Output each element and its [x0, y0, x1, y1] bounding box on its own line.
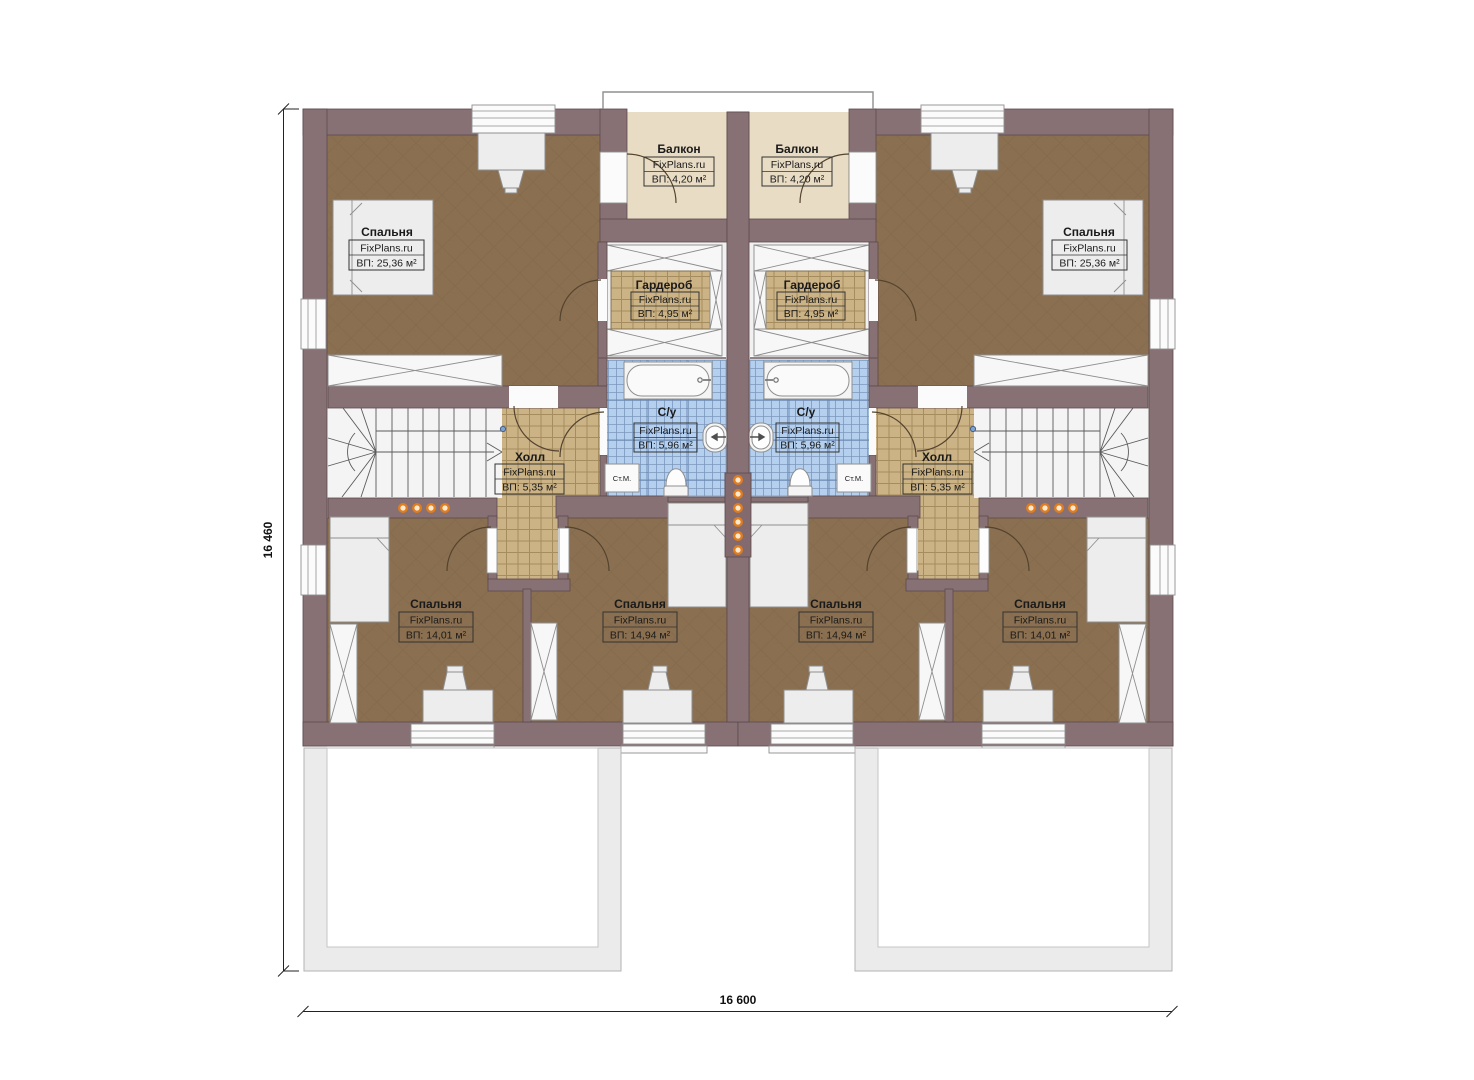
svg-text:ВП: 25,36 м²: ВП: 25,36 м²	[1059, 258, 1120, 270]
svg-text:FixPlans.ru: FixPlans.ru	[1063, 243, 1116, 255]
svg-text:FixPlans.ru: FixPlans.ru	[410, 615, 463, 627]
svg-text:Холл: Холл	[515, 450, 545, 464]
svg-text:ВП: 4,20 м²: ВП: 4,20 м²	[652, 174, 707, 186]
svg-text:Спальня: Спальня	[410, 597, 462, 611]
svg-text:Спальня: Спальня	[1063, 225, 1115, 239]
svg-text:FixPlans.ru: FixPlans.ru	[360, 243, 413, 255]
svg-text:Гардероб: Гардероб	[784, 278, 841, 292]
svg-text:ВП: 5,35 м²: ВП: 5,35 м²	[910, 482, 965, 494]
svg-text:FixPlans.ru: FixPlans.ru	[1014, 615, 1067, 627]
svg-text:ВП: 5,35 м²: ВП: 5,35 м²	[502, 482, 557, 494]
svg-text:FixPlans.ru: FixPlans.ru	[639, 294, 692, 306]
svg-text:ВП: 5,96 м²: ВП: 5,96 м²	[780, 440, 835, 452]
svg-text:ВП: 25,36 м²: ВП: 25,36 м²	[356, 258, 417, 270]
svg-text:С/у: С/у	[658, 405, 677, 419]
svg-text:Балкон: Балкон	[775, 142, 818, 156]
svg-text:FixPlans.ru: FixPlans.ru	[785, 294, 838, 306]
svg-text:FixPlans.ru: FixPlans.ru	[639, 425, 692, 437]
svg-text:Холл: Холл	[922, 450, 952, 464]
svg-text:FixPlans.ru: FixPlans.ru	[614, 615, 667, 627]
svg-text:FixPlans.ru: FixPlans.ru	[810, 615, 863, 627]
svg-text:Гардероб: Гардероб	[636, 278, 693, 292]
svg-text:ВП: 14,01 м²: ВП: 14,01 м²	[406, 630, 467, 642]
svg-text:FixPlans.ru: FixPlans.ru	[503, 467, 556, 479]
svg-text:ВП: 5,96 м²: ВП: 5,96 м²	[638, 440, 693, 452]
svg-text:16 460: 16 460	[261, 521, 275, 558]
svg-text:ВП: 14,94 м²: ВП: 14,94 м²	[806, 630, 867, 642]
svg-text:16 600: 16 600	[720, 993, 757, 1007]
svg-text:ВП: 14,01 м²: ВП: 14,01 м²	[1010, 630, 1071, 642]
svg-text:FixPlans.ru: FixPlans.ru	[771, 159, 824, 171]
svg-text:FixPlans.ru: FixPlans.ru	[653, 159, 706, 171]
svg-text:Ст.М.: Ст.М.	[613, 474, 631, 483]
svg-text:ВП: 14,94 м²: ВП: 14,94 м²	[610, 630, 671, 642]
svg-text:Спальня: Спальня	[810, 597, 862, 611]
svg-text:ВП: 4,95 м²: ВП: 4,95 м²	[784, 308, 839, 320]
svg-text:Спальня: Спальня	[361, 225, 413, 239]
svg-text:Балкон: Балкон	[657, 142, 700, 156]
svg-text:Спальня: Спальня	[614, 597, 666, 611]
svg-text:С/у: С/у	[797, 405, 816, 419]
svg-text:Спальня: Спальня	[1014, 597, 1066, 611]
svg-text:ВП: 4,20 м²: ВП: 4,20 м²	[770, 174, 825, 186]
svg-text:FixPlans.ru: FixPlans.ru	[781, 425, 834, 437]
svg-text:ВП: 4,95 м²: ВП: 4,95 м²	[638, 308, 693, 320]
svg-text:Ст.М.: Ст.М.	[845, 474, 863, 483]
svg-text:FixPlans.ru: FixPlans.ru	[911, 467, 964, 479]
